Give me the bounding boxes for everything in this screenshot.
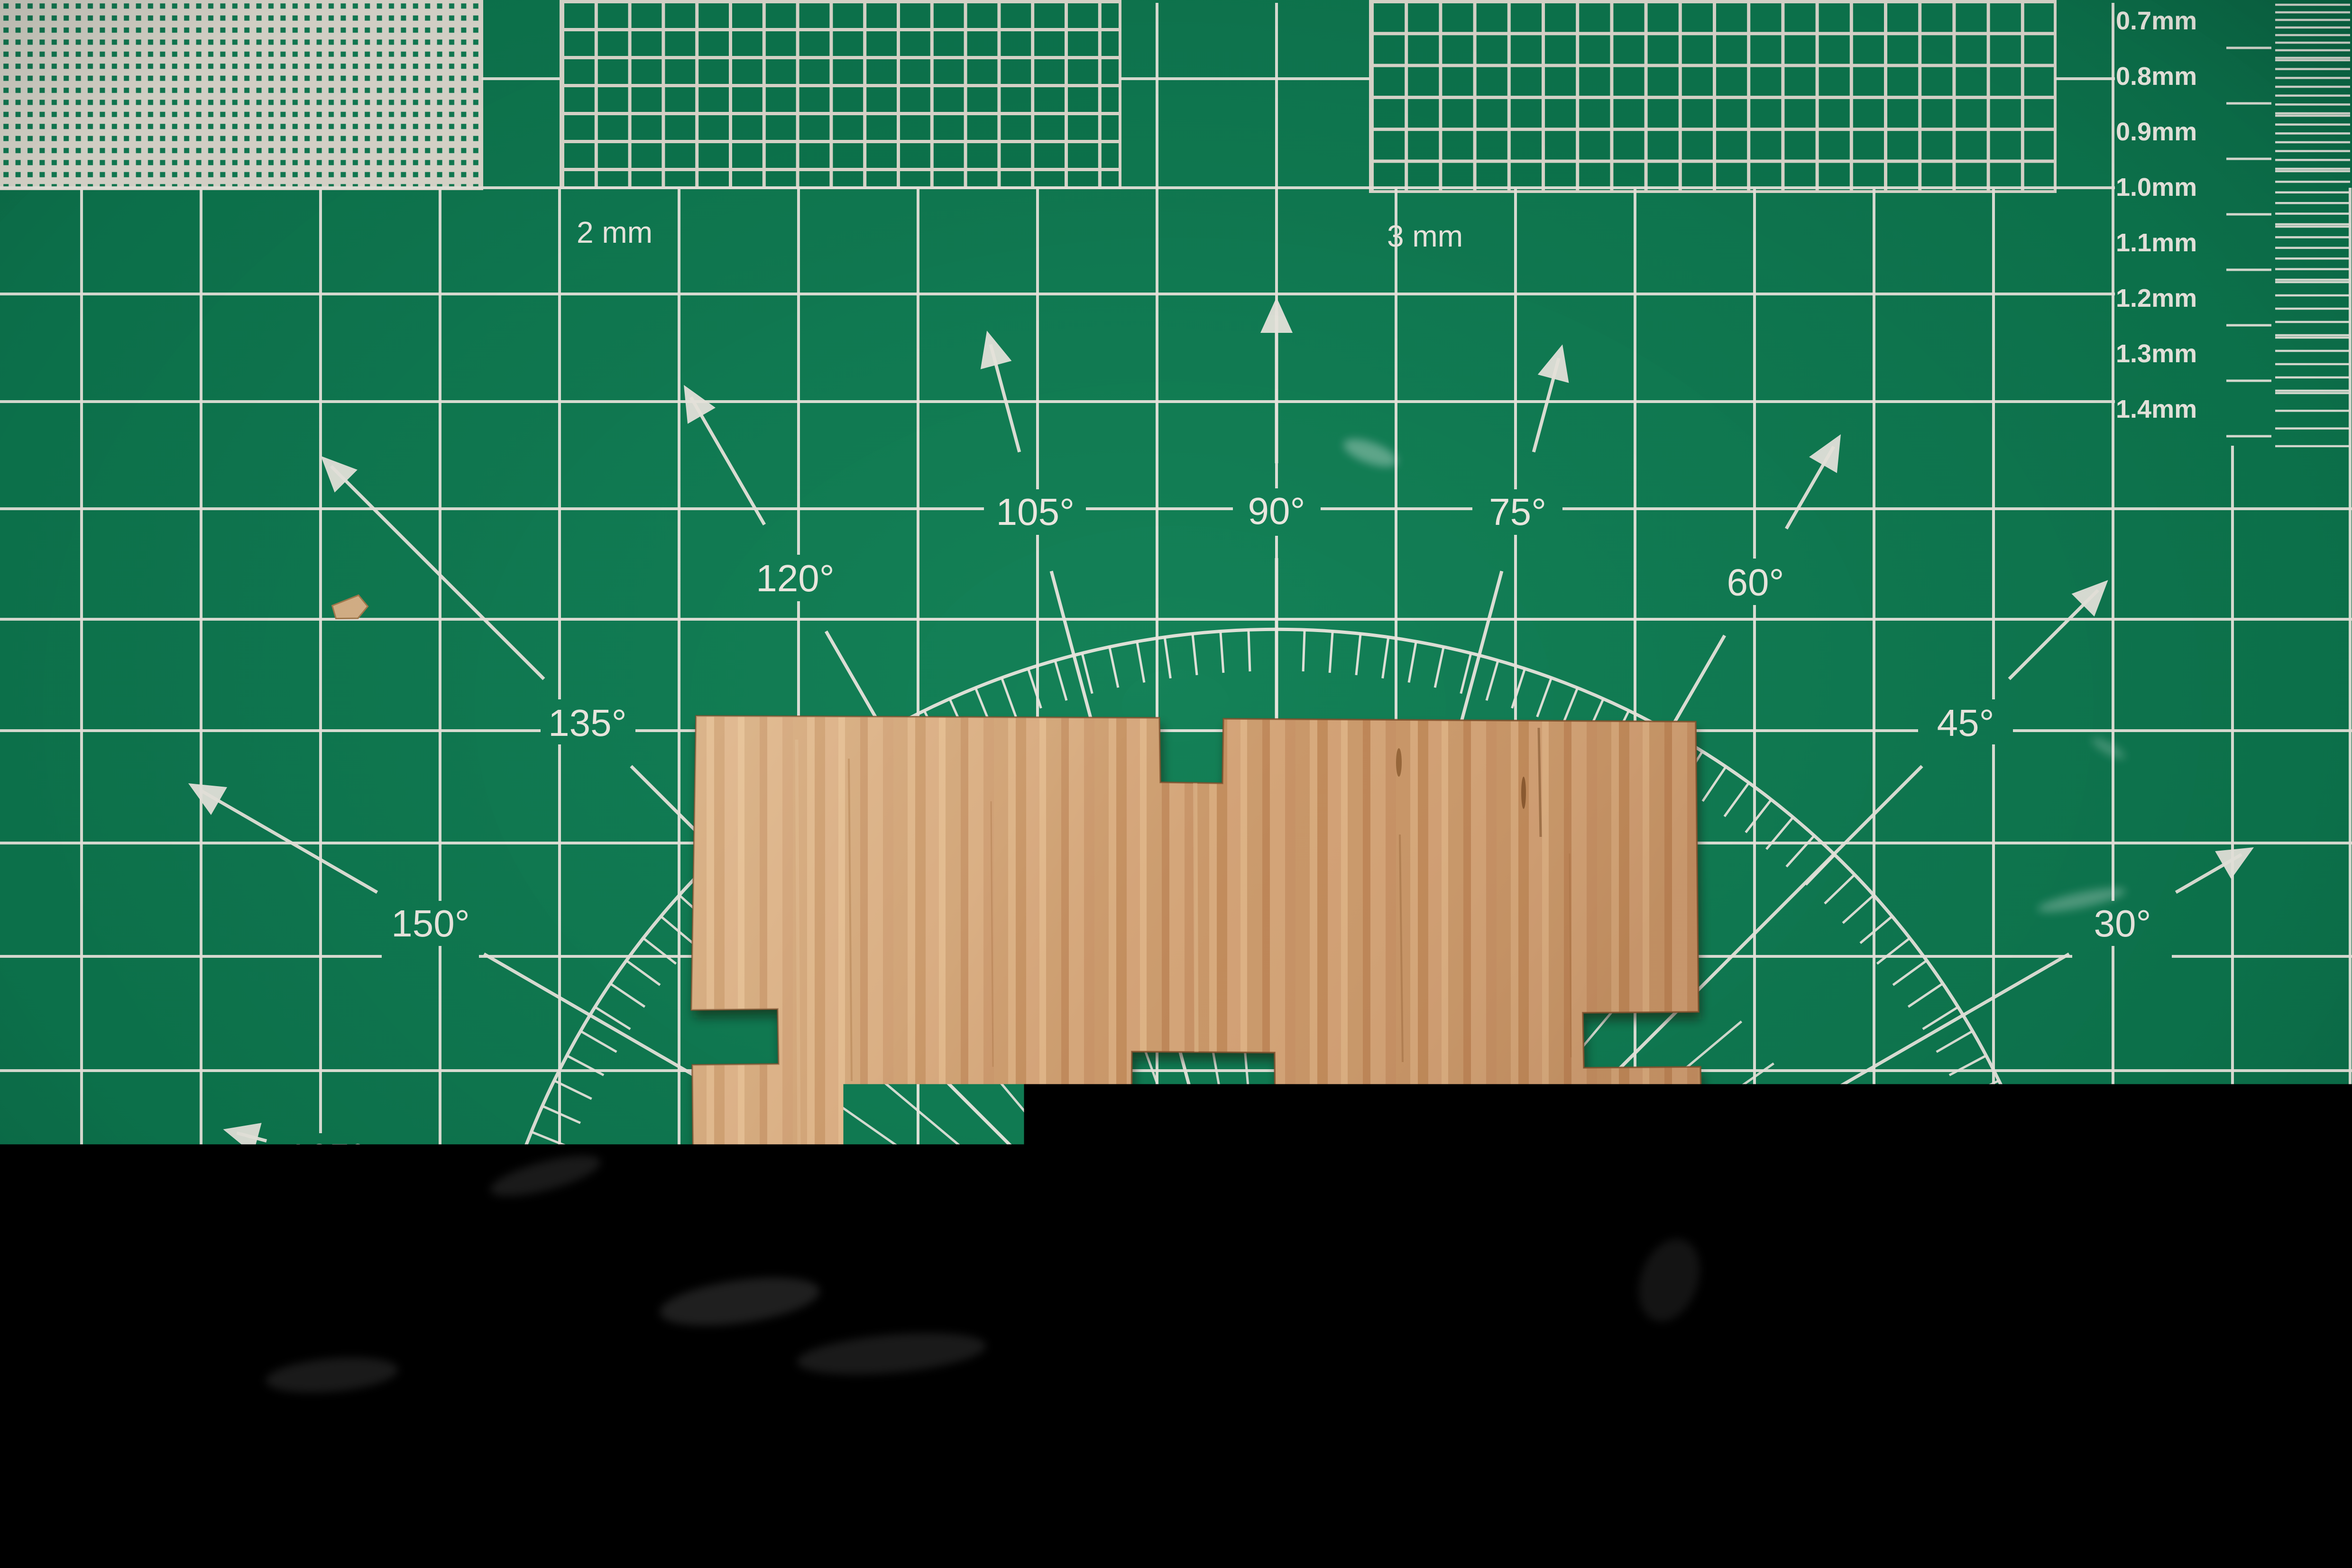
cutting-mat-photo: 0.7mm0.8mm0.9mm1.0mm1.1mm1.2mm1.3mm1.4mm… — [0, 0, 2352, 1568]
